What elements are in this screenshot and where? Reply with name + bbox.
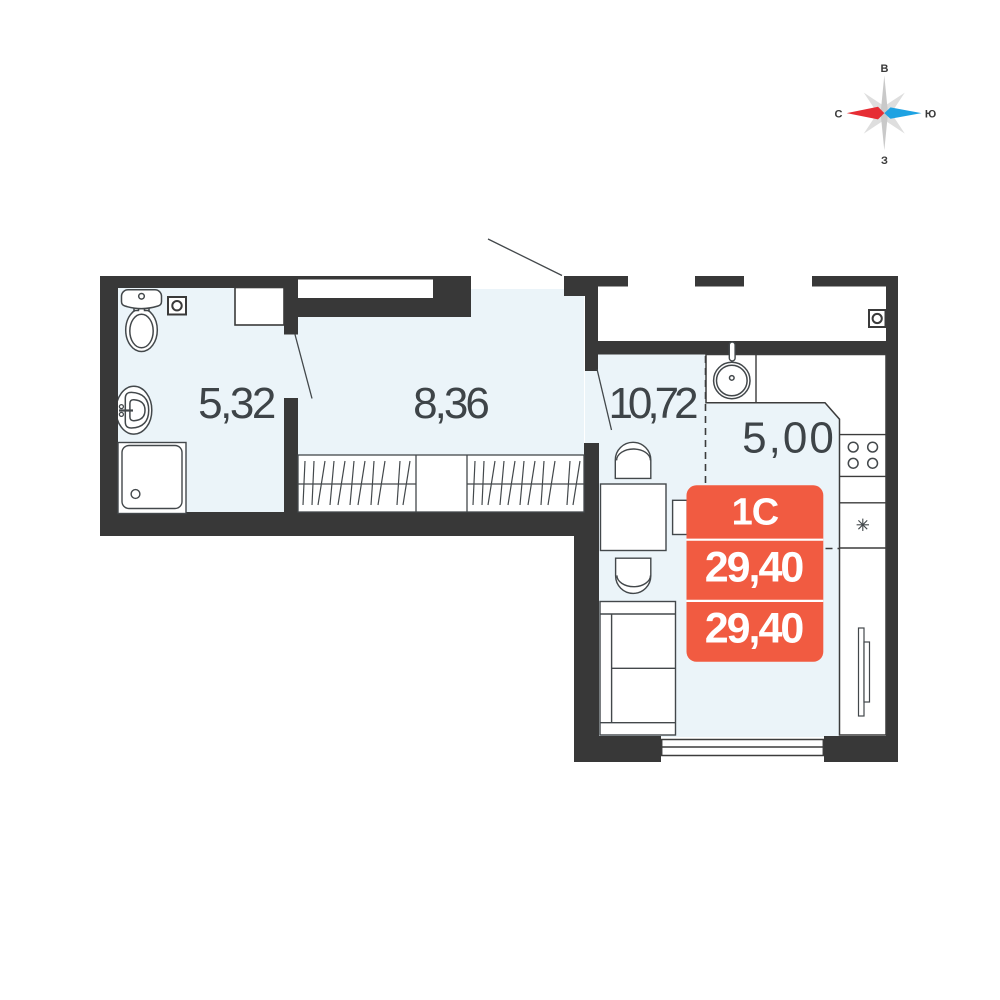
svg-text:С: С	[835, 109, 843, 121]
svg-text:29,40: 29,40	[705, 544, 804, 592]
svg-text:5,00: 5,00	[742, 414, 836, 463]
svg-text:В: В	[881, 63, 889, 75]
svg-text:8,36: 8,36	[413, 379, 488, 428]
svg-text:1С: 1С	[732, 492, 779, 534]
svg-text:10,72: 10,72	[608, 379, 697, 428]
svg-text:5,32: 5,32	[198, 379, 275, 428]
svg-text:З: З	[881, 155, 888, 167]
svg-text:Ю: Ю	[925, 109, 936, 121]
svg-text:29,40: 29,40	[705, 605, 804, 653]
